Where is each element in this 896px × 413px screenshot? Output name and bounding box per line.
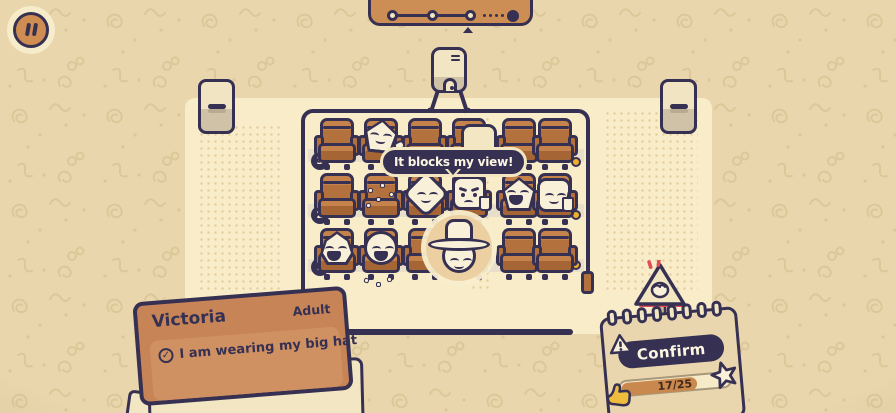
seat-r3-c6[interactable] [533, 118, 577, 168]
trait-text: I am wearing my big hat [179, 333, 358, 362]
thumbs-up-icon [604, 381, 634, 409]
guest-r1-c1[interactable] [320, 231, 354, 265]
trait-row: ✓ I am wearing my big hat [158, 333, 358, 364]
pause-icon [25, 23, 31, 36]
drink-cup [562, 197, 574, 212]
fist-icon [652, 283, 668, 297]
projector [431, 47, 467, 93]
big-hat-brim [428, 238, 490, 251]
journey-tracker [368, 0, 533, 26]
speaker-right [660, 79, 697, 134]
guest-age-tag: Adult [292, 301, 331, 319]
speaker-left [198, 79, 235, 134]
game-screen: 3 2 1 [0, 0, 896, 413]
guest-r2-c5[interactable] [502, 177, 536, 211]
seat-r2-c1[interactable] [315, 173, 359, 223]
seat-r3-c1[interactable] [315, 118, 359, 168]
popcorn-bit [376, 282, 381, 287]
seat-r1-c6[interactable] [533, 228, 577, 278]
tracker-current-marker [463, 22, 473, 33]
confirm-notepad: Confirm 17/25 [599, 306, 746, 413]
guest-name: Victoria [151, 306, 227, 332]
seat-r2-c2[interactable] [359, 173, 403, 223]
warning-icon [607, 332, 633, 356]
tracker-node-1 [387, 10, 398, 21]
guest-r1-c2[interactable] [364, 231, 398, 265]
rail-post [581, 271, 594, 294]
confirm-button-label: Confirm [636, 339, 706, 363]
tracker-node-3 [465, 10, 476, 21]
drink-cup [479, 196, 491, 211]
guest-traits-panel: ✓ I am wearing my big hat [149, 326, 343, 401]
pause-button[interactable] [13, 12, 49, 48]
tracker-end-node [507, 10, 519, 22]
popcorn-bit [376, 197, 381, 202]
speech-bubble: It blocks my view! [380, 147, 527, 177]
score-text: 17/25 [657, 377, 693, 393]
carpet-left-aisle [198, 124, 282, 292]
stage-front-line [345, 329, 573, 335]
speech-bubble-text: It blocks my view! [394, 155, 513, 169]
guest-card-victoria[interactable]: Victoria Adult ✓ I am wearing my big hat [132, 286, 354, 406]
tracker-node-2 [427, 10, 438, 21]
checkbox-checked-icon: ✓ [158, 348, 174, 364]
